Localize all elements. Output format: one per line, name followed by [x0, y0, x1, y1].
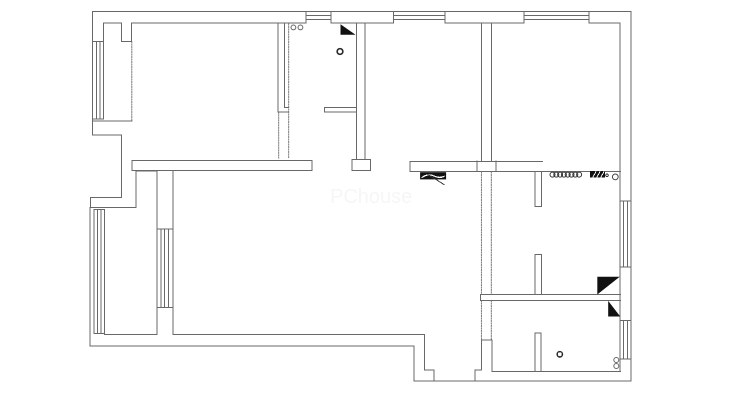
svg-text:PChouse: PChouse — [330, 186, 412, 208]
